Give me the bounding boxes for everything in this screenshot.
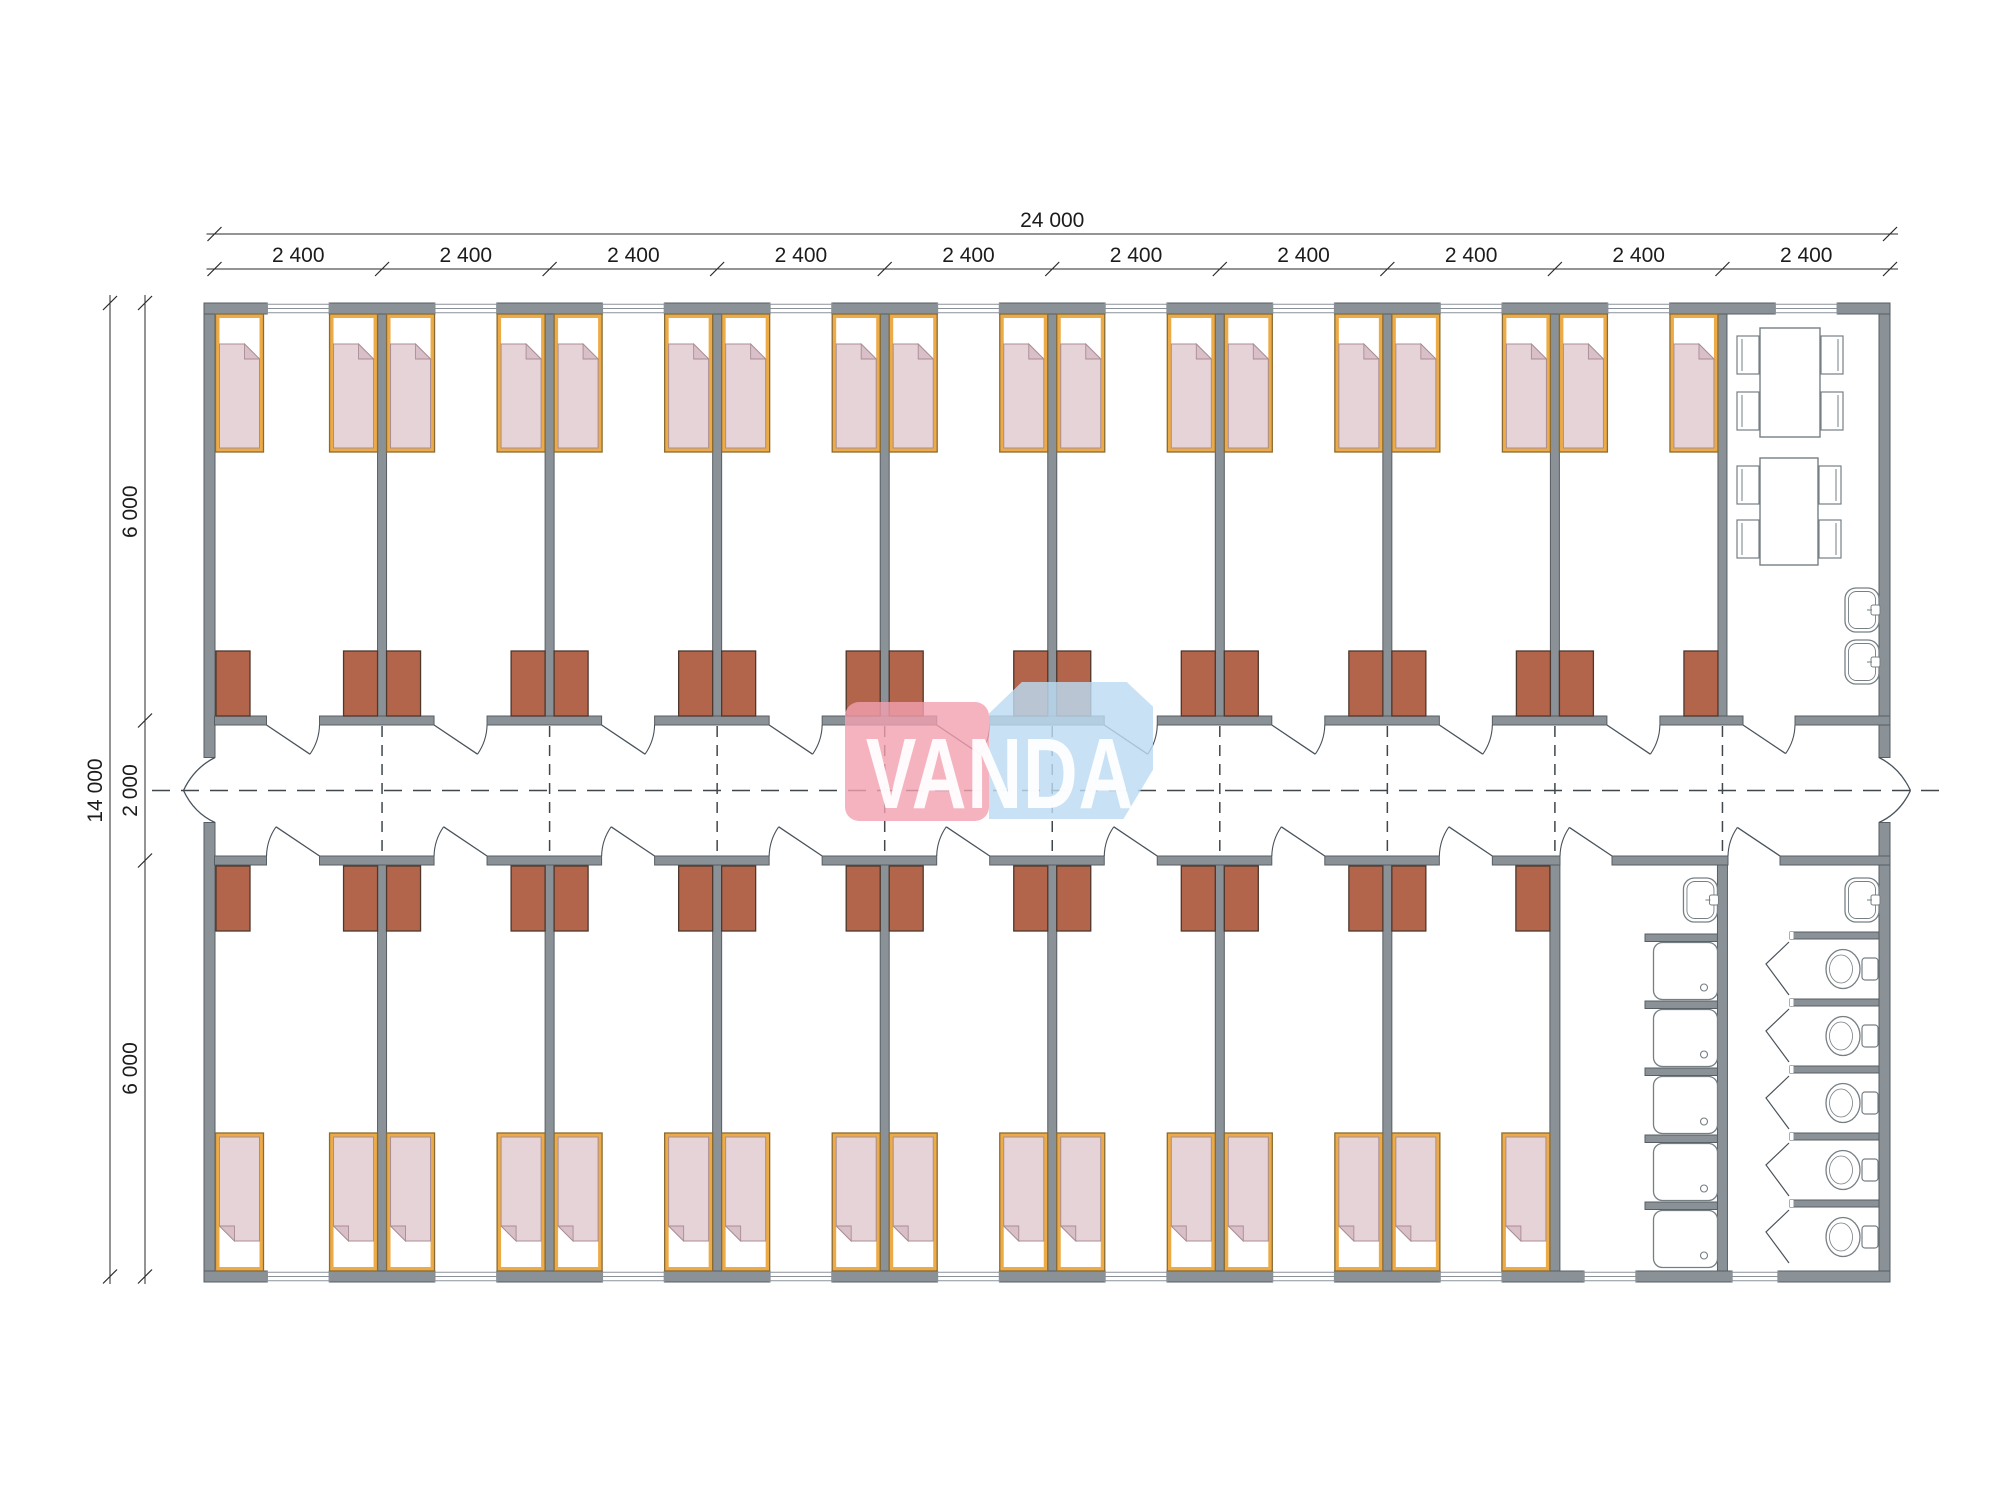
dining-table [1760,458,1818,565]
door-leaf [602,725,645,754]
bed [554,314,602,452]
door-leaf [1439,725,1482,754]
exterior-wall-bottom [999,1271,1105,1282]
door-leaf [267,725,310,754]
toilet-room-wall [1717,865,1727,1271]
wardrobe-cabinet [889,866,923,931]
wardrobe-cabinet [722,651,756,716]
dim-label-left-total: 14 000 [84,758,107,822]
bed-blanket [1506,1137,1546,1241]
dim-label-top-module-4: 2 400 [775,244,828,267]
door-leaf [434,725,477,754]
partition-wall-bottom-row [880,865,889,1271]
shower-partition-wall [1645,1135,1717,1143]
door-swing-arc [478,725,488,754]
bed-blanket [501,344,541,448]
dim-label-top-module-2: 2 400 [440,244,493,267]
exterior-wall-bottom [1335,1271,1441,1282]
corridor-wall-bottom [655,856,770,865]
bed-blanket [1004,344,1044,448]
wardrobe-cabinet [1559,651,1593,716]
partition-wall-bottom-row [378,865,387,1271]
bed-blanket [1171,1137,1211,1241]
exterior-wall-bottom [497,1271,603,1282]
dim-label-top-module-8: 2 400 [1445,244,1498,267]
shower-partition-wall [1645,1202,1717,1210]
wardrobe-cabinet [679,866,713,931]
corridor-wall-bottom [215,856,267,865]
bed-blanket [893,344,933,448]
bed-blanket [220,1137,260,1241]
partition-wall-bottom-row [1048,865,1057,1271]
toilet-tank [1862,1092,1878,1114]
bed [387,314,435,452]
partition-wall-top-row [1383,314,1392,716]
exterior-wall-top [1167,303,1273,314]
dim-label-left-segment-2: 2 000 [119,764,142,817]
door-swing-arc [937,827,947,856]
bed [1559,314,1607,452]
partition-wall-top-row [545,314,554,716]
corridor-wall-top [1157,716,1272,725]
wardrobe-cabinet [722,866,756,931]
wardrobe-cabinet [511,866,545,931]
door-leaf [1743,725,1786,754]
exterior-wall-bottom [664,1271,770,1282]
bed [1502,314,1550,452]
toilet-tank [1862,1025,1878,1047]
bed [1000,1133,1048,1271]
bed [1670,314,1718,452]
bed-blanket [669,344,709,448]
wardrobe-cabinet [1516,866,1550,931]
bed-blanket [1228,1137,1268,1241]
dim-label-left-segment-3: 6 000 [119,1042,142,1095]
bed-blanket [558,344,598,448]
chair [1821,392,1843,430]
partition-wall-top-row [378,314,387,716]
bed-blanket [1506,344,1546,448]
door-leaf [769,725,812,754]
stall-partition-jamb [1790,1133,1794,1140]
bed [665,314,713,452]
partition-wall-top-row [1550,314,1559,716]
door-swing-arc [1650,725,1660,754]
door-swing-arc [1272,827,1282,856]
wardrobe-cabinet [1349,651,1383,716]
toilet-stall-door [1766,942,1789,995]
chair [1737,392,1759,430]
corridor-wall-top [487,716,602,725]
bed [1502,1133,1550,1271]
door-leaf [779,827,822,856]
sanitary [1645,588,1880,1268]
bed-blanket [334,344,374,448]
bed [665,1133,713,1271]
exterior-wall-top [1335,303,1441,314]
bed-blanket [1061,1137,1101,1241]
door-swing-arc [267,827,277,856]
wardrobe-cabinet [1392,651,1426,716]
partition-wall-top-row [713,314,722,716]
wardrobe-cabinet [344,651,378,716]
wardrobe-cabinet [387,866,421,931]
bed [497,1133,545,1271]
door-leaf [611,827,654,856]
bed [1335,314,1383,452]
bed-blanket [1396,344,1436,448]
basin-faucet [1871,895,1880,905]
dim-label-top-module-5: 2 400 [942,244,995,267]
bed-blanket [1061,344,1101,448]
shower-tray [1654,943,1718,1000]
shower-partition-wall [1645,1001,1717,1009]
door-swing-arc [645,725,655,754]
bed-blanket [220,344,260,448]
door-swing-arc [1483,725,1493,754]
exterior-wall-right [1879,303,1890,758]
chair [1737,336,1759,374]
bed [330,314,378,452]
wardrobe-cabinet [1224,866,1258,931]
partition-wall-bottom-row [545,865,554,1271]
bed-blanket [1563,344,1603,448]
bed [216,314,264,452]
bed [1057,1133,1105,1271]
shower-partition-wall [1645,934,1717,942]
corridor-wall-bottom [1612,856,1728,865]
toilet-tank [1862,1226,1878,1248]
bed-blanket [726,344,766,448]
bed-blanket [1674,344,1714,448]
shower-partition-wall [1645,1068,1717,1076]
shower-tray [1654,1077,1718,1134]
floor-plan-canvas: 24 0002 4002 4002 4002 4002 4002 4002 40… [0,0,2000,1508]
exterior-wall-top [664,303,770,314]
wardrobe-cabinet [1392,866,1426,931]
bed-blanket [836,344,876,448]
exterior-wall-bottom [1167,1271,1273,1282]
dim-label-top-total: 24 000 [1020,209,1084,232]
corridor-wall-top [1492,716,1607,725]
bed-blanket [1228,344,1268,448]
door-leaf [1114,827,1157,856]
bed [497,314,545,452]
partition-wall-bottom-row [1215,865,1224,1271]
bed [1167,314,1215,452]
basin-faucet [1709,895,1718,905]
shower-tray [1654,1211,1718,1268]
bed-blanket [1004,1137,1044,1241]
corridor-wall-top [1795,716,1890,725]
bed [216,1133,264,1271]
partition-wall-top-row [880,314,889,716]
bed [1335,1133,1383,1271]
corridor-wall-bottom [1325,856,1440,865]
door-swing-arc [1104,827,1114,856]
corridor-wall-top [320,716,435,725]
toilet-stall-partition [1790,1133,1879,1140]
bed-blanket [669,1137,709,1241]
dining-table [1760,328,1820,437]
exterior-wall-bottom [204,1271,267,1282]
corridor-wall-bottom [990,856,1105,865]
bed [1000,314,1048,452]
chair [1819,520,1841,558]
wardrobe-cabinet [1181,651,1215,716]
bed-blanket [1396,1137,1436,1241]
wardrobe-cabinet [1684,651,1718,716]
wardrobe-cabinet [554,651,588,716]
dim-label-top-module-1: 2 400 [272,244,325,267]
bed [330,1133,378,1271]
corridor-wall-bottom [822,856,937,865]
bed-blanket [391,344,431,448]
bed [1057,314,1105,452]
door-leaf [946,827,989,856]
wardrobe-cabinet [846,866,880,931]
chair [1819,466,1841,504]
stall-partition-jamb [1790,932,1794,939]
stall-partition-jamb [1790,999,1794,1006]
toilet-stall-door [1766,1143,1789,1196]
toilet-stall-door [1766,1009,1789,1062]
toilet-stall-door [1766,1076,1789,1129]
exterior-wall-left [204,823,215,1283]
dim-label-top-module-6: 2 400 [1110,244,1163,267]
exterior-wall-bottom [832,1271,938,1282]
partition-wall-bottom-row [1383,865,1392,1271]
toilet-stall-partition [1790,932,1879,939]
shower-tray [1654,1144,1718,1201]
toilet-tank [1862,1159,1878,1181]
door-leaf [1449,827,1492,856]
basin-faucet [1871,605,1880,615]
bed [722,1133,770,1271]
bed [889,1133,937,1271]
vanda-watermark-text: VANDA [863,726,1137,822]
toilet-stall-partition [1790,1200,1879,1207]
wardrobe-cabinet [216,866,250,931]
partition-wall-bottom-row [713,865,722,1271]
exterior-wall-left [204,303,215,758]
wardrobe-cabinet [344,866,378,931]
corridor-wall-top [655,716,770,725]
bed-blanket [391,1137,431,1241]
corridor-wall-bottom [1780,856,1890,865]
door-leaf [1607,725,1650,754]
corridor-wall-top [1325,716,1440,725]
exterior-wall-top [832,303,938,314]
partition-wall-top-row [1215,314,1224,716]
bed [1392,1133,1440,1271]
wardrobe-cabinet [554,866,588,931]
wardrobe-cabinet [511,651,545,716]
wardrobe-cabinet [1224,651,1258,716]
bed-blanket [558,1137,598,1241]
bed [722,314,770,452]
dim-label-top-module-3: 2 400 [607,244,660,267]
bed [1167,1133,1215,1271]
basin-faucet [1871,657,1880,667]
bed [832,1133,880,1271]
wardrobe-cabinet [1181,866,1215,931]
exterior-wall-right [1879,823,1890,1283]
door-swing-arc [1560,827,1569,856]
dining-room-wall [1718,314,1727,716]
stall-partition-jamb [1790,1200,1794,1207]
dim-label-top-module-9: 2 400 [1612,244,1665,267]
exterior-wall-bottom [329,1271,435,1282]
dim-label-top-module-10: 2 400 [1780,244,1833,267]
bed-blanket [1339,344,1379,448]
bed [1224,314,1272,452]
shower-tray [1654,1010,1718,1067]
bed-blanket [1171,344,1211,448]
exterior-wall-top [1837,303,1890,314]
bed-blanket [334,1137,374,1241]
exterior-wall-bottom [1502,1271,1584,1282]
door-swing-arc [1315,725,1325,754]
door-swing-arc [1439,827,1449,856]
bed [1224,1133,1272,1271]
bed [889,314,937,452]
door-leaf [276,827,319,856]
dim-label-left-segment-1: 6 000 [119,485,142,538]
door-swing-arc [434,827,444,856]
door-swing-arc [602,827,612,856]
exterior-wall-bottom [1778,1271,1890,1282]
exterior-wall-top [329,303,435,314]
door-swing-arc [1728,827,1737,856]
partition-wall-top-row [1048,314,1057,716]
exterior-wall-top [1670,303,1776,314]
bed-blanket [726,1137,766,1241]
door-swing-arc [310,725,320,754]
door-swing-arc [1786,725,1795,754]
bed [832,314,880,452]
chair [1737,466,1759,504]
bed [1392,314,1440,452]
door-leaf [1569,827,1612,856]
corridor-wall-top [215,716,267,725]
door-swing-arc [769,827,779,856]
bed-blanket [1339,1137,1379,1241]
bed-blanket [501,1137,541,1241]
dining-room [1737,328,1843,565]
toilet-stall-partition [1790,999,1879,1006]
bed [554,1133,602,1271]
wardrobe-cabinet [1014,866,1048,931]
corridor-wall-top [1660,716,1743,725]
door-leaf [444,827,487,856]
door-leaf [1737,827,1780,856]
bed [387,1133,435,1271]
door-leaf [1281,827,1324,856]
door-swing-arc [813,725,823,754]
bed-blanket [836,1137,876,1241]
toilet-stall-door [1766,1210,1789,1263]
wardrobe-cabinet [679,651,713,716]
wardrobe-cabinet [216,651,250,716]
wardrobe-cabinet [387,651,421,716]
stall-partition-jamb [1790,1066,1794,1073]
chair [1821,336,1843,374]
exterior-wall-top [1502,303,1608,314]
dim-label-top-module-7: 2 400 [1277,244,1330,267]
exterior-wall-bottom [1636,1271,1732,1282]
exterior-wall-top [204,303,267,314]
chair [1737,520,1759,558]
door-leaf [1272,725,1315,754]
exterior-wall-top [497,303,603,314]
toilet-stall-partition [1790,1066,1879,1073]
exterior-wall-top [999,303,1105,314]
corridor-wall-bottom [320,856,435,865]
corridor-wall-bottom [1492,856,1560,865]
shower-room-wall [1550,865,1560,1271]
wardrobe-cabinet [1057,866,1091,931]
wardrobe-cabinet [1516,651,1550,716]
bed-blanket [893,1137,933,1241]
wardrobe-cabinet [1349,866,1383,931]
toilet-tank [1862,958,1878,980]
corridor-wall-bottom [1157,856,1272,865]
corridor-wall-bottom [487,856,602,865]
